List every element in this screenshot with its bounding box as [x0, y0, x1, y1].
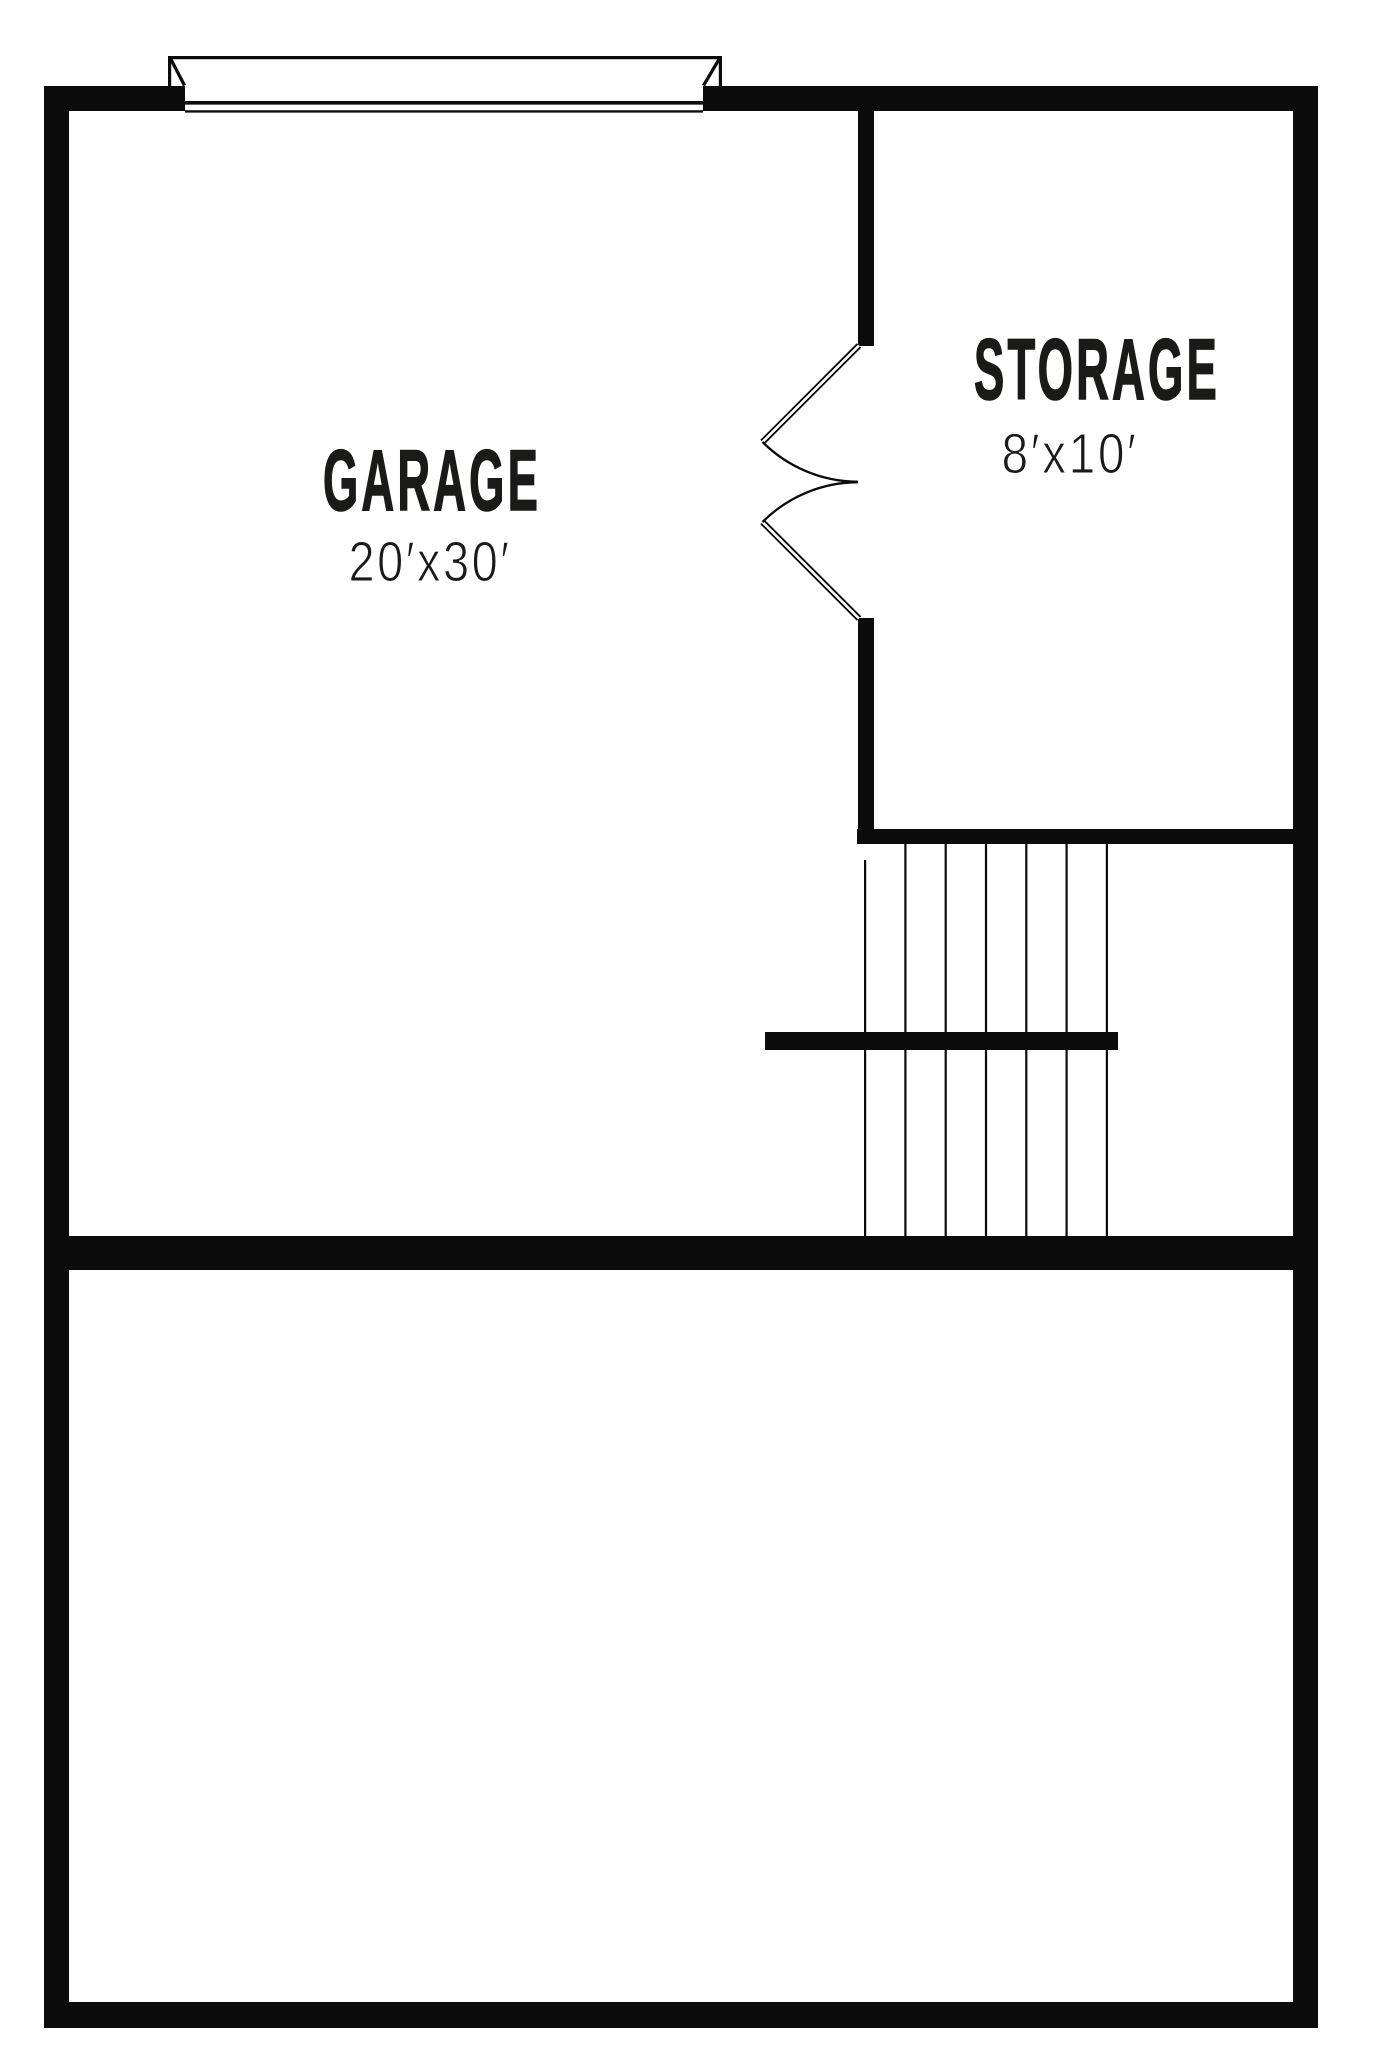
svg-text:GARAGE: GARAGE	[323, 433, 541, 529]
svg-text:STORAGE: STORAGE	[974, 322, 1220, 418]
svg-text:8′x10′: 8′x10′	[1002, 422, 1139, 486]
svg-text:20′x30′: 20′x30′	[349, 530, 512, 594]
